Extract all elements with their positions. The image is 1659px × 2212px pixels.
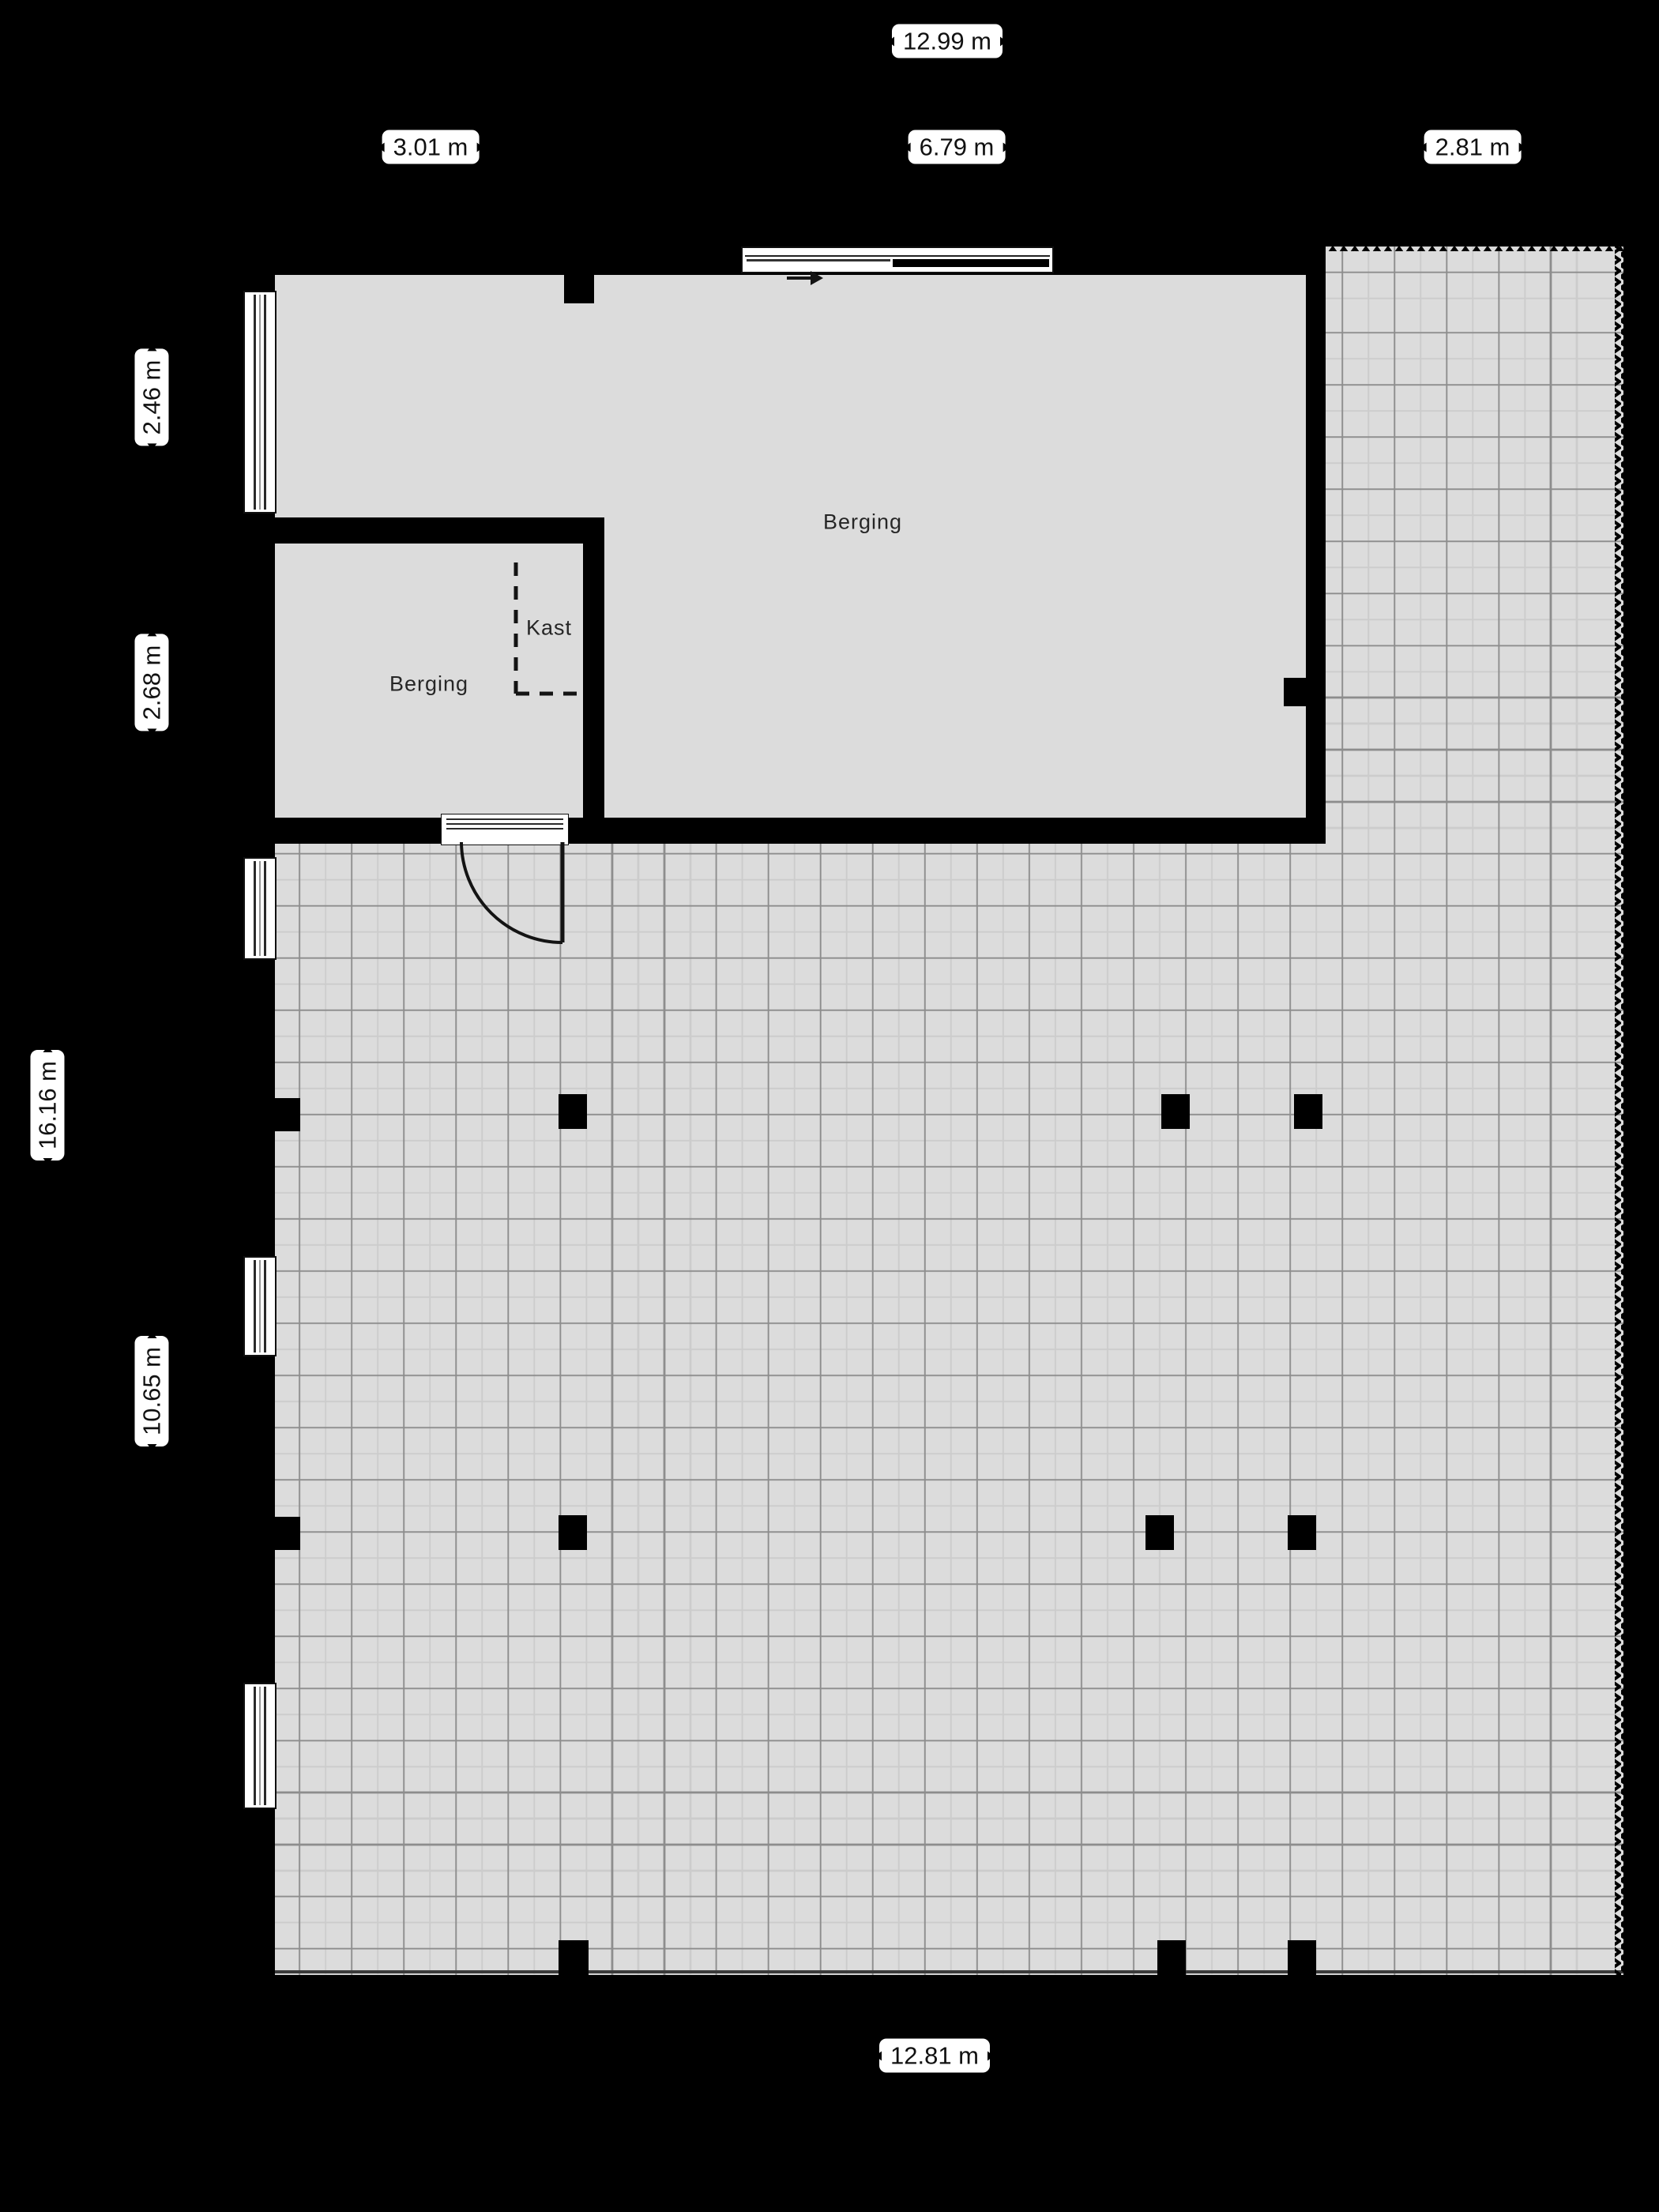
window-left-1 [243,291,276,513]
pier-left-wall-2 [275,1517,300,1550]
column-row1-1 [559,1094,587,1129]
wall-right-berging [1306,245,1326,844]
dim-left-mid-section: 2.68 m [135,634,169,732]
window-left-3 [243,1256,276,1356]
room-label-berging-large: Berging [823,510,902,535]
wall-bottom-berging [245,818,1326,844]
dim-top-mid-section: 6.79 m [908,130,1006,164]
room-label-kast: Kast [526,616,572,641]
window-left-4 [243,1683,276,1809]
window-glass [254,1260,266,1352]
sliding-door-top [741,246,1054,273]
pier-left-wall-1 [275,1098,300,1131]
dim-left-lower-section: 10.65 m [135,1336,169,1446]
dim-top-right-section: 2.81 m [1424,130,1522,164]
terrace-bottom-edge [275,1970,1623,1973]
dim-left-total: 16.16 m [31,1050,65,1161]
column-row2-2 [1145,1515,1174,1550]
sliding-door-panel [893,259,1049,267]
column-row1-2 [1161,1094,1190,1129]
wall-interior-horizontal [245,517,604,544]
sliding-door-rail [745,255,1050,257]
wall-interior-vertical [583,517,604,844]
door-threshold [441,814,569,845]
room-label-berging-small: Berging [389,672,468,697]
window-glass [254,295,266,510]
dim-top-left-section: 3.01 m [382,130,480,164]
pier-right-wall [1284,678,1306,706]
door-sill-stripes [446,818,563,831]
column-row2-1 [559,1515,587,1550]
column-row3-1 [559,1940,589,1975]
floorplan-canvas: Berging Berging Kast 12.99 m 3.01 m 6.79… [0,0,1659,2212]
column-row1-3 [1294,1094,1322,1129]
window-glass [254,1687,266,1805]
column-row3-2 [1157,1940,1186,1975]
window-glass [254,861,266,956]
dim-top-total: 12.99 m [892,24,1003,58]
window-left-2 [243,857,276,960]
pier-top-wall [564,275,594,303]
dim-bottom-total: 12.81 m [879,2039,990,2073]
column-row3-3 [1288,1940,1316,1975]
dim-left-upper-section: 2.46 m [135,349,169,446]
column-row2-3 [1288,1515,1316,1550]
sliding-door-panel-2 [747,259,890,261]
